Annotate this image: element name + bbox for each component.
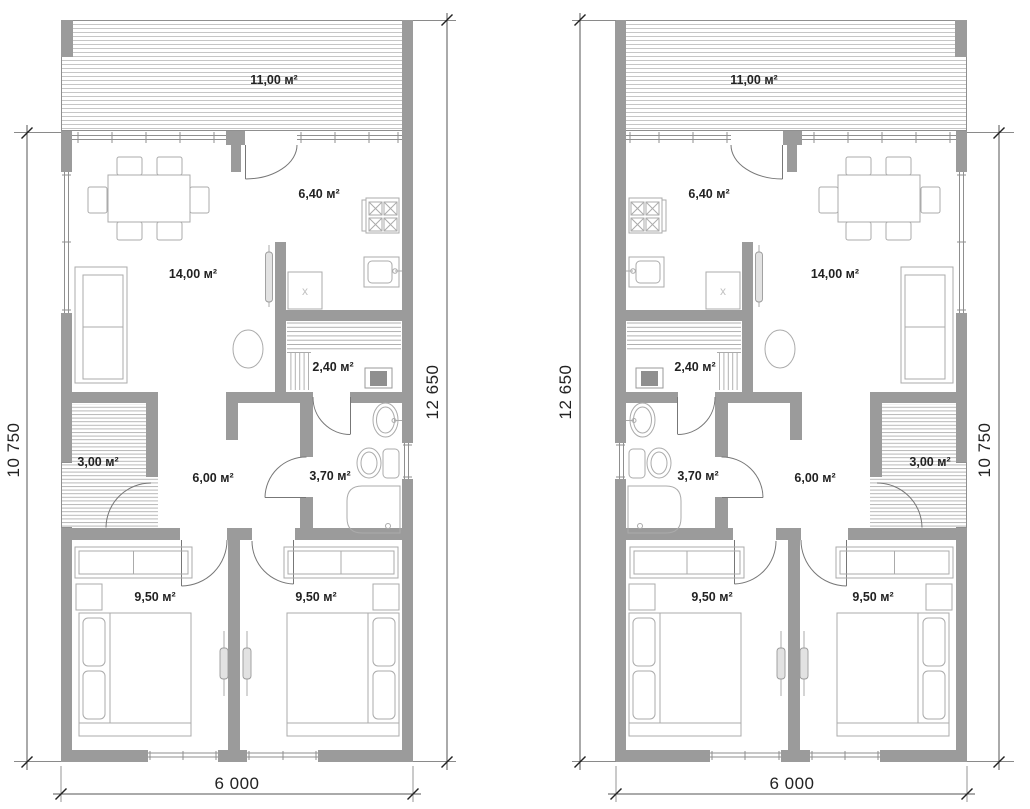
floor-plan-drawing: 11,00 м² 6,40 м² 14,00 м² 2,40 м² 3,00 м… xyxy=(0,0,1030,809)
dim-width-right: 6 000 xyxy=(769,774,814,793)
room-label-bedroom: 9,50 м² xyxy=(691,590,732,604)
room-label-living: 14,00 м² xyxy=(169,267,217,281)
dim-depth-main-left: 10 750 xyxy=(4,423,23,478)
floor-plan-canvas: 11,00 м² 6,40 м² 14,00 м² 2,40 м² 3,00 м… xyxy=(0,0,1030,809)
room-label-kitchen: 6,40 м² xyxy=(298,187,339,201)
room-label-kitchen: 6,40 м² xyxy=(688,187,729,201)
room-label-hall: 6,00 м² xyxy=(794,471,835,485)
dim-depth-total-right: 12 650 xyxy=(556,365,575,420)
room-label-living: 14,00 м² xyxy=(811,267,859,281)
room-label-terrace: 11,00 м² xyxy=(730,73,777,87)
room-label-porch: 3,00 м² xyxy=(909,455,950,469)
room-label-bedroom: 9,50 м² xyxy=(295,590,336,604)
floor-plan-unit-left xyxy=(61,20,413,762)
floor-plan-unit-right xyxy=(615,20,967,762)
dim-depth-total-left: 12 650 xyxy=(423,365,442,420)
washer-mark: х xyxy=(720,284,726,298)
room-label-sauna: 2,40 м² xyxy=(312,360,353,374)
room-label-porch: 3,00 м² xyxy=(77,455,118,469)
room-label-bedroom: 9,50 м² xyxy=(134,590,175,604)
room-label-bathroom: 3,70 м² xyxy=(309,469,350,483)
dim-depth-main-right: 10 750 xyxy=(975,423,994,478)
dim-width-left: 6 000 xyxy=(214,774,259,793)
room-label-hall: 6,00 м² xyxy=(192,471,233,485)
room-label-terrace: 11,00 м² xyxy=(250,73,297,87)
room-label-sauna: 2,40 м² xyxy=(674,360,715,374)
room-label-bedroom: 9,50 м² xyxy=(852,590,893,604)
room-label-bathroom: 3,70 м² xyxy=(677,469,718,483)
washer-mark: х xyxy=(302,284,308,298)
